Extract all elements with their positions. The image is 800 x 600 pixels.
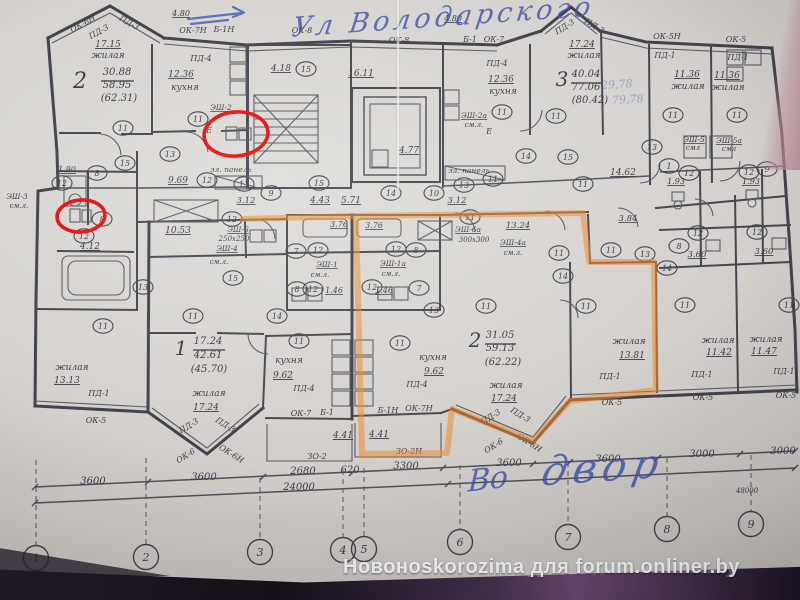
axis-bubble-number: 7 [565,531,572,544]
plan-label: Е [485,127,492,136]
plan-label: ЭШ-4а [500,238,526,247]
plan-label: ОК-7Н [405,404,434,413]
position-bubble-number: 11 [481,302,491,311]
plan-label: ПД-4 [292,384,314,393]
plan-label: 620 [340,465,360,476]
plan-label: кухня [275,356,303,366]
position-bubble-number: 11 [98,322,108,331]
plan-label: 3.60 [688,250,708,260]
position-bubble-number: 15 [314,179,324,188]
plan-label: жилая [55,363,88,373]
plan-label: жилая [671,82,704,92]
plan-label: ПД-3 [508,405,532,424]
plan-label: см.л. [465,121,484,129]
plan-label: 3.76 [365,221,383,230]
position-bubble-number: 14 [558,272,568,281]
position-bubble-number: 12 [693,229,703,238]
plan-label: 11.36 [714,71,740,81]
plan-label: 40.04 [571,69,601,80]
plan-label: (62.31) [101,93,138,104]
plan-label: ПД-3 [86,23,110,42]
plan-label: 48000 [735,487,759,495]
position-bubble-number: 11 [488,175,498,184]
position-bubble-number: 12 [391,245,401,254]
position-bubble-number: 11 [784,301,794,310]
position-bubble-number: 11 [395,339,405,348]
plan-label: 12.36 [168,70,194,80]
plan-label: 13.24 [506,221,530,231]
apartment-1-number: 1 [175,336,188,360]
plan-label: 3600 [80,476,106,487]
position-bubble-number: 14 [386,189,396,198]
plan-label: ОК-5 [776,391,797,400]
plan-label: 13.13 [54,376,80,386]
position-bubble-number: 12 [313,246,323,255]
plan-label: ПД-1 [772,367,794,376]
position-bubble-number: 7 [293,247,299,256]
plan-label: 17.15 [95,40,121,50]
position-bubble-number: 8 [676,242,681,251]
plan-label: 17.24 [491,394,517,404]
position-bubble-number: 13 [239,180,249,189]
position-bubble-number: 11 [668,111,678,120]
plan-label: ОК-5Н [653,32,682,41]
axis-bubble-number: 8 [664,523,671,536]
axis-bubble-number: 2 [142,551,150,564]
plan-label: ОК-5 [726,35,747,44]
plan-label: ПД-4 [189,54,211,63]
plan-label: 10.53 [165,226,191,236]
plan-label: 4.80 [443,14,462,23]
plan-label: 14.62 [610,168,636,178]
position-bubble-number: 12 [308,285,318,294]
plan-label: 9.62 [273,371,293,381]
plan-label: 4.41 [368,430,389,440]
plan-label: ОК-7 [291,409,312,418]
plan-label: (62.22) [485,357,522,368]
plan-label: Б-1Н [377,406,400,415]
plan-label: ОК-8 [292,26,313,35]
plan-label: 3300 [393,461,419,472]
plan-label: ОК-6 [483,437,505,456]
plan-label: 3.12 [237,196,256,206]
position-bubble-number: 14 [521,152,531,161]
plan-label: ЭШ-2а [461,111,487,120]
paper-crease [396,0,400,190]
photo-of-floor-plan: ОК-6НПД-3ПД-317.15жилая230.8858.95(62.31… [0,0,800,600]
plan-label: ПД-1 [690,370,712,379]
position-bubble-number: 13 [647,143,657,152]
plan-label: 11.47 [751,347,777,357]
plan-label: см.л. [10,202,29,210]
plan-label: ОК-6Н [217,443,246,466]
plan-label: 1.46 [325,286,343,295]
position-bubble-number: 11 [606,246,616,255]
position-bubble-number: 12 [752,228,762,237]
position-bubble-number: 11 [497,108,507,117]
position-bubble-number: 12 [227,215,237,224]
plan-label: 1.46 [375,286,393,295]
position-bubble-number: 15 [563,153,573,162]
plan-label: смл [722,145,736,153]
position-bubble-number: 12 [744,168,754,177]
plan-label: 17.24 [569,40,595,50]
position-bubble-number: 11 [732,111,742,120]
plan-label: Б-1 [462,35,477,44]
plan-label: смл [686,144,700,152]
position-bubble-number: 1 [666,162,671,171]
position-bubble-number: 11 [554,249,564,258]
plan-label: кухня [489,87,517,97]
plan-label: 24000 [282,482,315,493]
plan-label: 4.41 [332,431,353,441]
plan-label: см.л. [210,258,229,266]
plan-label: 3000 [770,446,796,457]
plan-label: 11.42 [706,348,732,358]
room-label-kitchen: кухня [171,83,199,93]
apartment-2-number: 2 [72,69,87,94]
plan-label: эл. панель [210,165,251,174]
plan-label: 3600 [595,454,621,465]
plan-label: ОК-6 [175,447,197,466]
table-surface-top-right [758,0,800,170]
plan-label: 2680 [289,466,316,477]
plan-label: кухня [419,353,447,363]
plan-label: см.л. [311,271,330,279]
plan-label: ПД-3 [176,416,200,435]
plan-label: 77.06 [572,82,601,93]
position-bubble-number: 15 [301,65,311,74]
plan-label: ПД-4 [405,380,427,389]
plan-label: ЭШ-3 [6,192,28,201]
plan-label: ПД-1 [598,372,620,381]
floor-plan-drawing: ОК-6НПД-3ПД-317.15жилая230.8858.95(62.31… [0,0,800,600]
position-bubble-number: 13 [165,150,175,159]
plan-label: (80.42) [572,95,609,106]
position-bubble-number: 14 [662,264,672,273]
plan-label: 9.62 [424,367,444,377]
plan-label: ЭШ-6а [455,225,481,234]
plan-label: ПД-4 [485,59,507,68]
plan-label: эл. панель [448,166,489,175]
plan-label: Б-1 [319,408,334,417]
faint-pen-number: 29,78 [600,77,633,92]
position-bubble-number: 14 [272,312,282,321]
position-bubble-number: 9 [268,189,273,198]
plan-label: 17.24 [193,403,219,413]
plan-label: 4.77 [398,146,419,156]
plan-label: ОК-5 [86,416,107,425]
plan-label: 3.84 [619,214,638,224]
position-bubble-number: 13 [640,250,650,259]
plan-label: 16.11 [348,69,374,79]
plan-label: 9.69 [168,176,188,186]
apartment-2b-number: 2 [468,328,482,352]
plan-label: ПД-3 [582,16,606,35]
position-bubble-number: 10 [429,189,439,198]
position-bubble-number: 11 [188,312,198,321]
stairwell [248,45,351,188]
watermark: Новоноskorozima для forum.onliner.by [343,556,740,579]
plan-label: жилая [711,83,744,93]
axis-bubble-number: 6 [457,536,464,549]
plan-label: 4.43 [309,196,330,206]
axis-bubble-number: 5 [361,543,368,556]
plan-label: ПД-1 [653,51,675,60]
position-bubble-number: 11 [680,301,690,310]
position-bubble-number: 15 [120,159,130,168]
plan-label: ЗО-2 [307,452,326,461]
plan-label: ЭШ-1 [316,260,338,269]
plan-label: жилая [701,336,734,346]
position-bubble-number: 11 [581,302,591,311]
plan-label: см.л. [504,249,523,257]
plan-label: 11.36 [674,70,700,80]
plan-label: 300x300 [459,236,490,244]
plan-label: 4.18 [270,64,291,74]
axis-bubble-number: 3 [257,546,264,559]
position-bubble-number: 12 [367,283,377,292]
plan-label: 1.90 [58,165,76,174]
plan-label: 30.88 [103,67,132,78]
position-bubble-number: 8 [413,246,418,255]
blue-pen-arrow [188,7,244,24]
plan-label: ЭШ-1а [380,259,406,268]
apartment-3-number: 3 [556,67,569,91]
plan-label: ПД-3 [213,415,237,434]
plan-label: 31.05 [486,330,515,341]
faint-pen-number: 79,78 [612,92,644,107]
plan-label: 4.80 [171,9,190,18]
plan-label: 3.60 [755,247,775,257]
position-bubble-number: 11 [193,115,203,124]
plan-label: 59.13 [486,343,515,354]
position-bubble-number: 7 [416,284,422,293]
position-bubble-number: 8 [294,285,299,294]
position-bubble-number: 13 [138,283,148,292]
plan-label: см.л. [382,270,401,278]
plan-label: ЭШ-5 [683,135,705,144]
position-bubble-number: 12 [202,176,212,185]
plan-label: жилая [489,381,522,391]
plan-label: 12.36 [488,75,514,85]
plan-label: ОК-5 [693,393,714,402]
plan-label: 3600 [496,458,522,469]
plan-label: ЭШ-2 [210,103,232,112]
position-bubble-number: 12 [684,169,694,178]
plan-label: 3.12 [448,196,467,206]
plan-label: ОК-7Н [179,26,208,35]
position-bubble-number: 8 [94,169,99,178]
plan-label: ЭШ-4 [216,244,238,253]
plan-label: ЭШ-5а [716,136,742,145]
plan-label: жилая [749,335,782,345]
position-bubble-number: 12 [57,179,67,188]
position-bubble-number: 15 [228,274,238,283]
position-bubble-number: 11 [578,180,588,189]
plan-label: ОК-7 [484,35,505,44]
plan-label: ПД-1 [87,389,109,398]
plan-label: 3000 [689,449,715,460]
plan-label: жилая [612,337,645,347]
plan-label: ПД-1 [726,53,748,62]
plan-label: 250x250 [218,235,250,243]
position-bubble-number: 11 [294,337,304,346]
plan-label: 3600 [191,472,217,483]
position-bubble-number: 11 [118,124,128,133]
plan-label: 13.81 [619,351,645,361]
position-bubble-number: 11 [551,112,561,121]
plan-label: 17.24 [194,336,223,347]
plan-label: жилая [192,389,225,399]
plan-label: 3.76 [330,220,348,229]
position-bubble-number: 13 [459,181,469,190]
plan-label: 5.71 [341,196,361,206]
plan-label: Б-1Н [213,25,236,34]
plan-label: жилая [567,51,600,61]
plan-label: 42.61 [193,350,223,361]
position-bubble-number: 13 [429,306,439,315]
plan-label: 58.95 [103,80,132,91]
room-label-living: жилая [91,51,124,61]
plan-label: (45.70) [191,364,228,375]
axis-bubble-number: 9 [748,518,755,531]
